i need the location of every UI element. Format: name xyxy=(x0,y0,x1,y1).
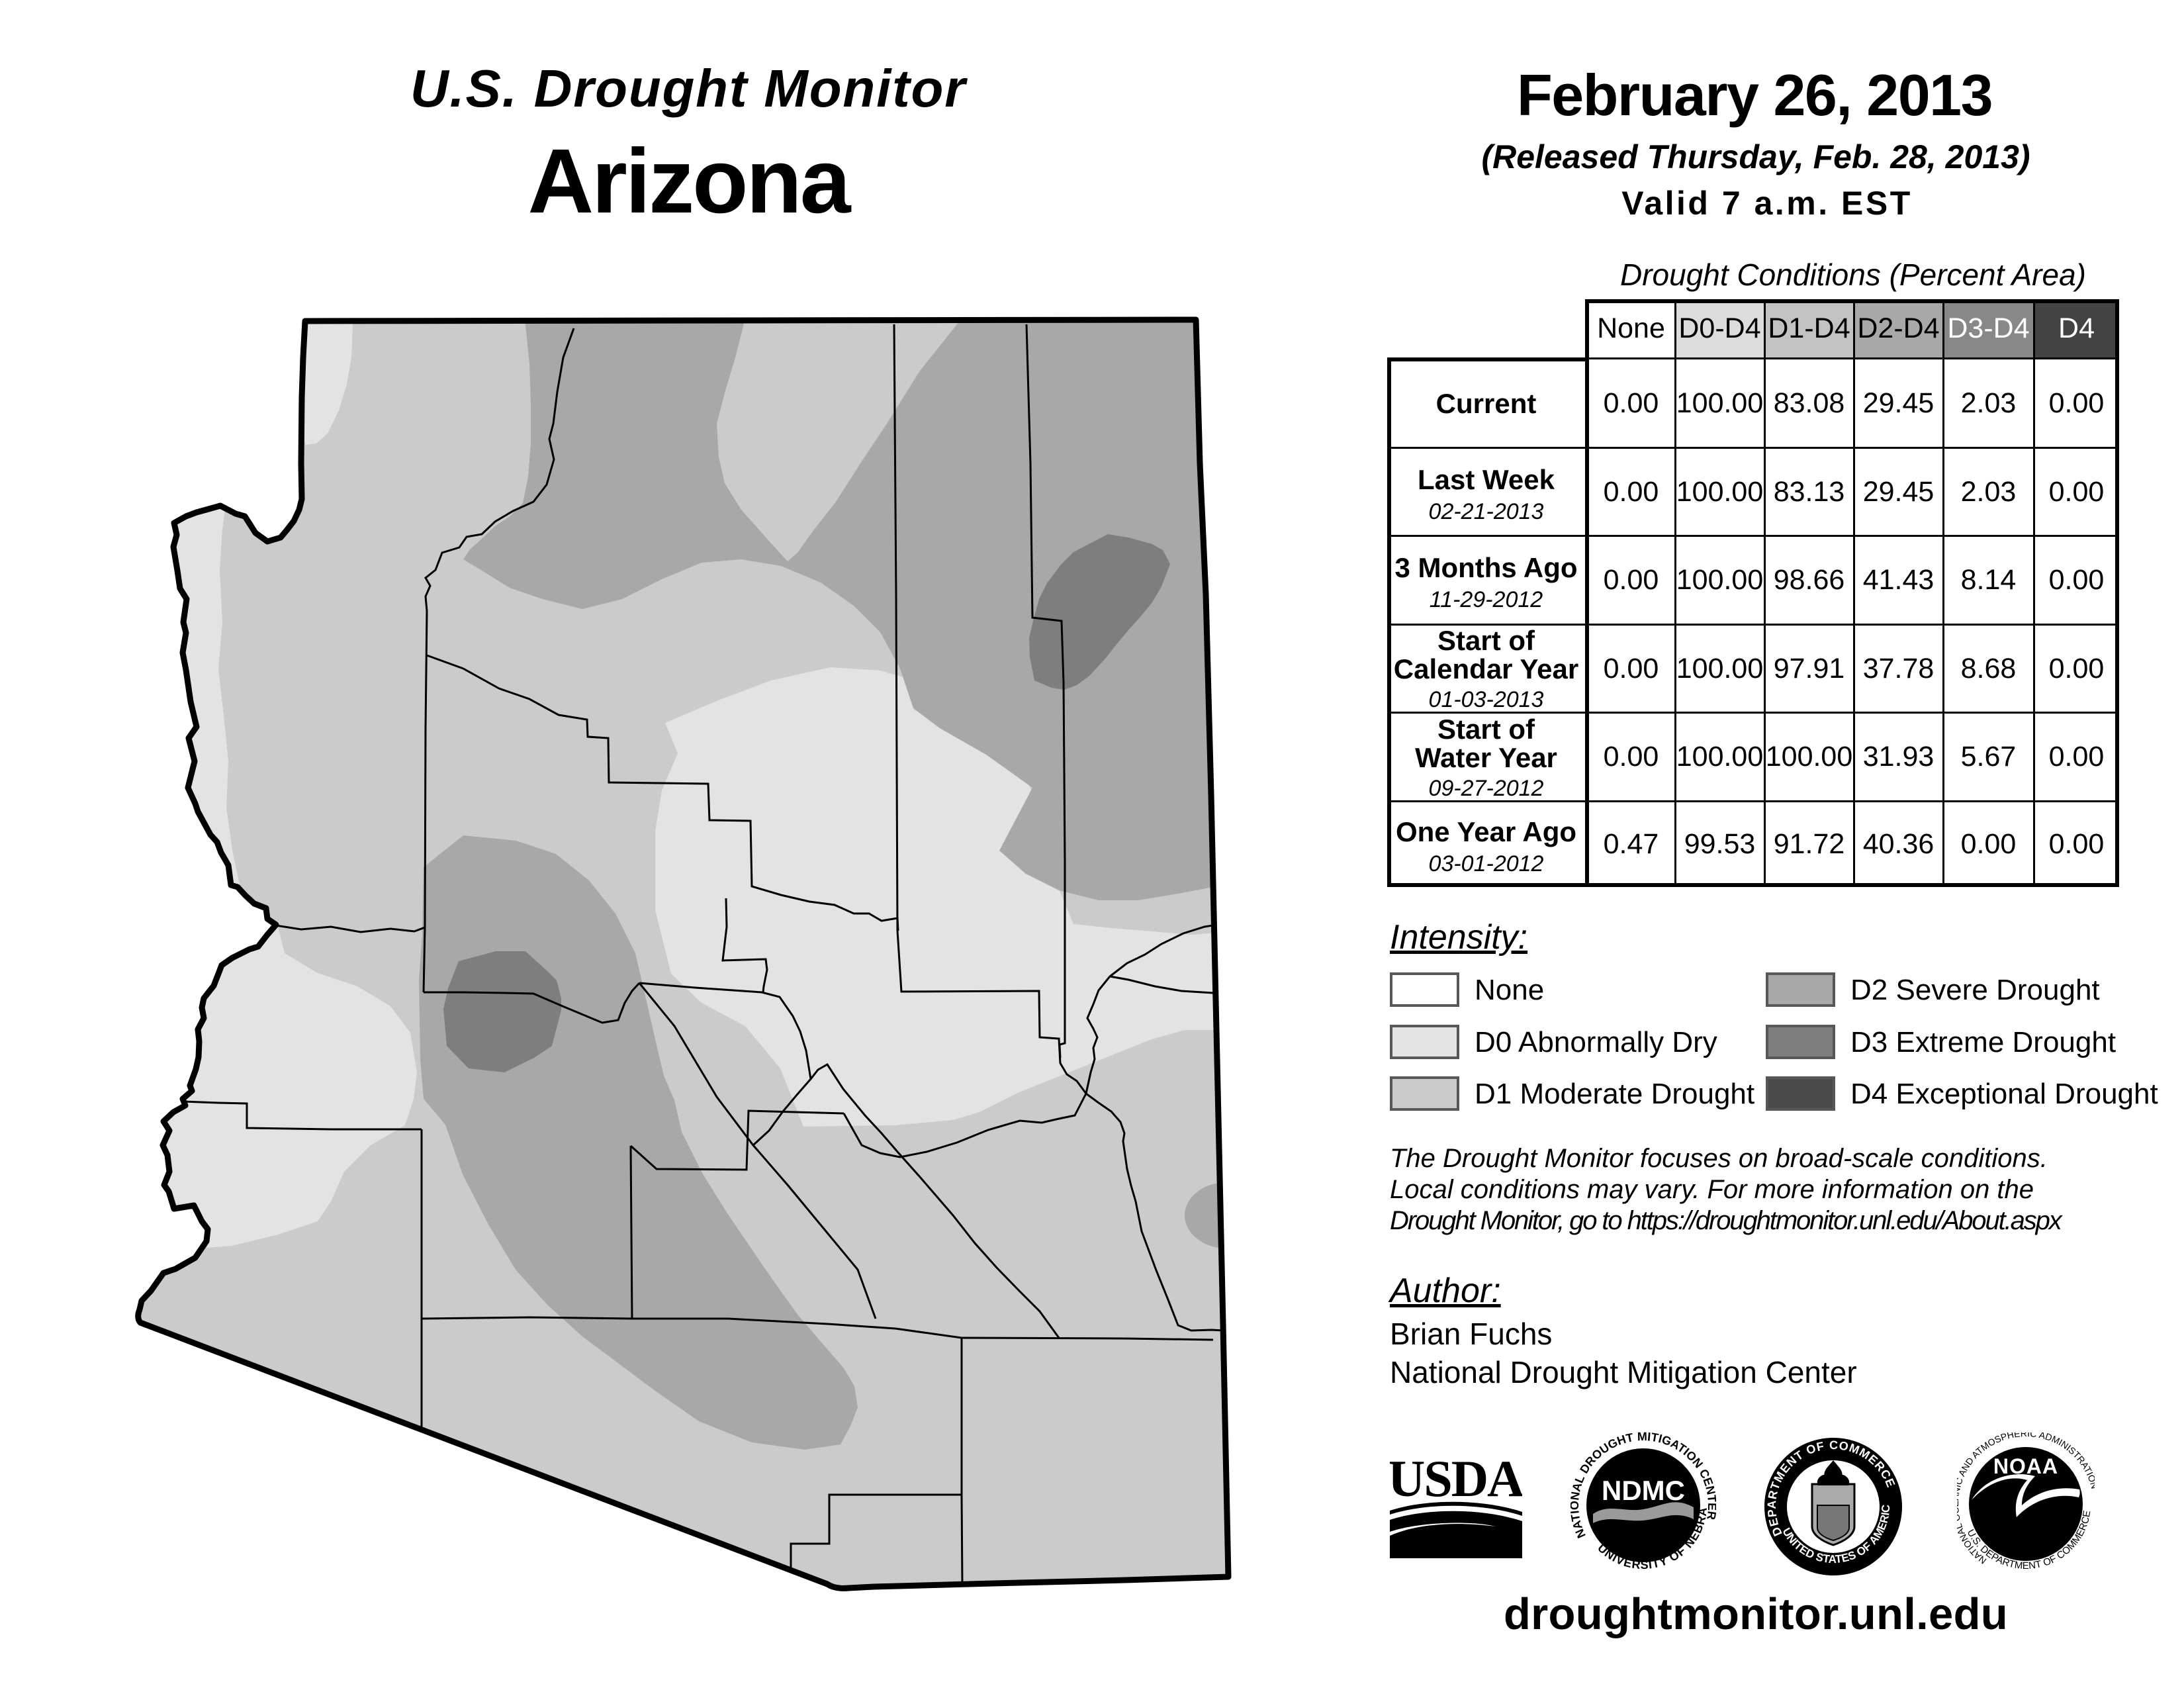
svg-text:NOAA: NOAA xyxy=(1993,1454,2058,1478)
svg-text:NDMC: NDMC xyxy=(1602,1475,1685,1506)
svg-text:USDA: USDA xyxy=(1390,1454,1522,1507)
svg-text:★: ★ xyxy=(1787,1499,1799,1514)
svg-text:★: ★ xyxy=(1869,1499,1881,1514)
